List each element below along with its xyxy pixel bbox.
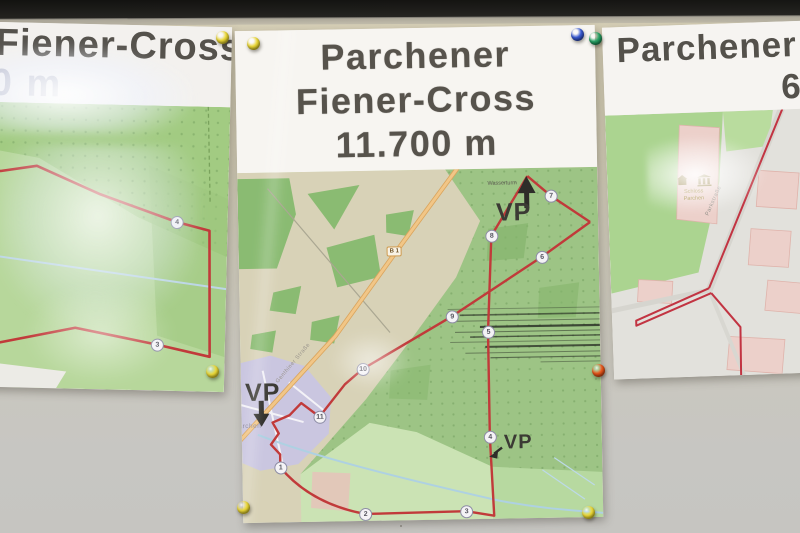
waypoint-marker-10: 10: [357, 363, 370, 376]
waypoint-marker-3: 3: [460, 505, 473, 518]
waypoint-marker-8: 8: [485, 230, 498, 243]
yellow-pushpin-left-poster-top: [216, 31, 229, 44]
center-map-waypoints: 1234567891011: [237, 167, 603, 523]
right-map-terrain: [605, 108, 800, 379]
vp-label-right: VP: [504, 431, 533, 454]
blue-pushpin: [571, 28, 584, 41]
b1-road-badge: B 1: [387, 246, 403, 256]
waypoint-marker-7: 7: [545, 190, 558, 203]
waypoint-marker-4: 4: [171, 216, 184, 229]
poster-right-title-block: Parchener 60: [602, 20, 800, 115]
orange-pushpin: [592, 364, 605, 377]
waypoint-marker-9: 9: [446, 310, 459, 323]
vp-label-left: VP: [245, 378, 281, 408]
poster-left: Fiener-Cross 0 m 43: [0, 21, 232, 392]
poster-center-title-line2: Fiener-Cross: [236, 75, 597, 125]
village-name-label: Parchen: [237, 423, 261, 430]
poster-center-title-line3: 11.700 m: [236, 119, 597, 169]
schloss-label-line2: Parchen: [684, 195, 705, 202]
yellow-pushpin-left-poster-bottom: [206, 365, 219, 378]
tower-map-label: Wasserturm: [487, 180, 517, 187]
waypoint-marker-4: 4: [484, 431, 497, 444]
poster-right-title: Parchener: [602, 24, 800, 71]
poster-center-title-block: Parchener Fiener-Cross 11.700 m: [235, 25, 597, 173]
poster-right: Parchener 60: [602, 20, 800, 379]
poster-left-subtitle: 0 m: [0, 62, 63, 107]
waypoint-marker-6: 6: [536, 251, 549, 264]
poster-left-title-block: Fiener-Cross 0 m: [0, 21, 232, 107]
schloss-building-icons: [677, 174, 711, 187]
poster-left-map-area: 43: [0, 101, 230, 392]
yellow-pushpin-center-bottom-right: [582, 506, 595, 519]
map-noticeboard-photo: Fiener-Cross 0 m 43: [0, 0, 800, 533]
wall-speck: [400, 525, 402, 527]
poster-center-map-area: 1234567891011 VP VP VP Wasserturm Genthi…: [237, 167, 603, 523]
poster-right-title-line2: 60: [780, 66, 800, 107]
poster-center-title-line1: Parchener: [235, 31, 596, 81]
yellow-pushpin-center-bottom-left: [237, 501, 250, 514]
waypoint-marker-11: 11: [313, 411, 326, 424]
poster-right-map-area: Schloss Parchen Parkstraße: [605, 108, 800, 379]
poster-center: Parchener Fiener-Cross 11.700 m: [235, 25, 604, 523]
green-pushpin: [589, 32, 602, 45]
waypoint-marker-1: 1: [274, 461, 287, 474]
left-map-waypoints: 43: [0, 101, 230, 392]
waypoint-marker-5: 5: [482, 326, 495, 339]
waypoint-marker-2: 2: [359, 508, 372, 521]
waypoint-marker-3: 3: [151, 338, 164, 351]
vp-label-top: VP: [496, 198, 532, 228]
yellow-pushpin-center-poster-top: [247, 37, 260, 50]
